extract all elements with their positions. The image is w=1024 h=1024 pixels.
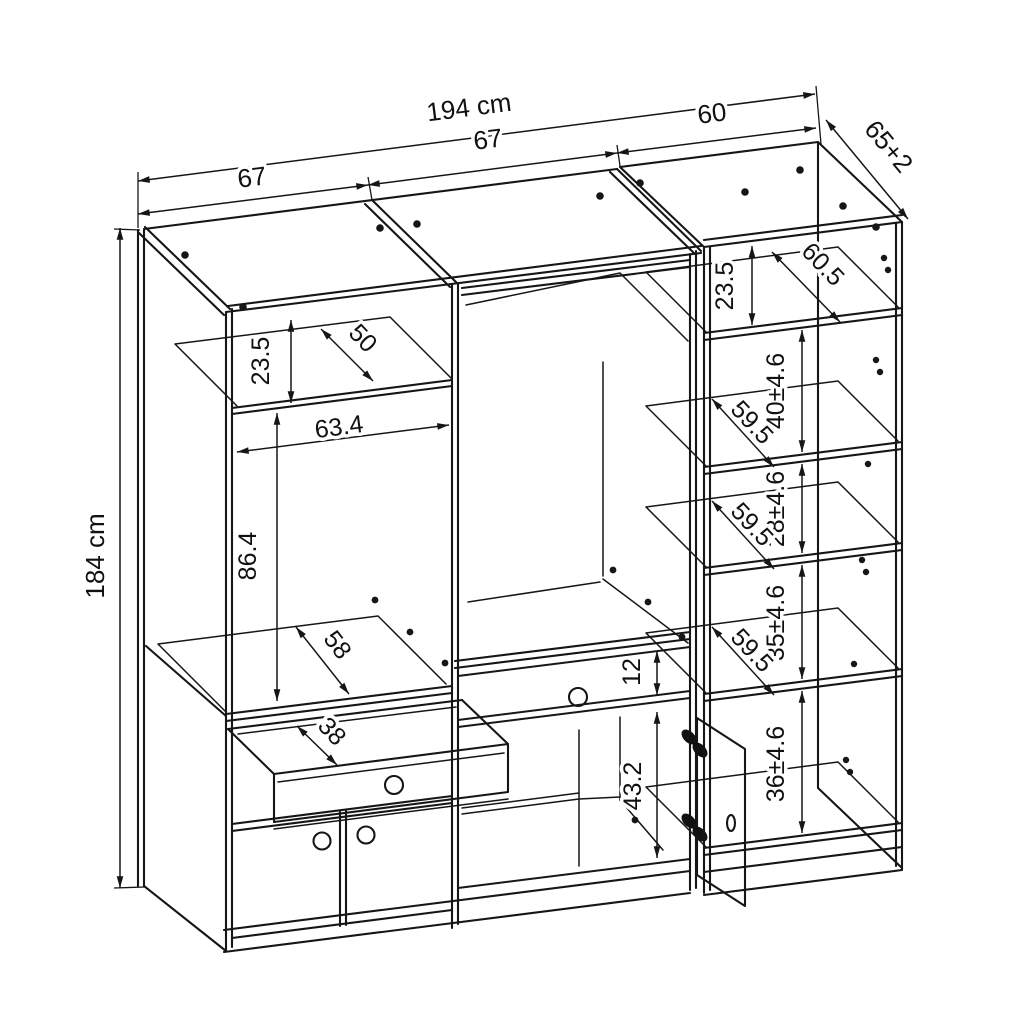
open-door <box>679 718 745 906</box>
dimension-total-height: 184 cm <box>80 228 120 888</box>
dimension-right-top-gap: 23.5 <box>711 246 752 325</box>
right-gap-4-label: 36±4.6 <box>762 726 790 802</box>
right-top-shelf-depth-label: 60.5 <box>796 237 850 291</box>
dimension-center-width: 67 <box>368 122 617 185</box>
left-doors <box>232 796 452 938</box>
left-interior-height-label: 86.4 <box>234 532 262 581</box>
center-door-height-label: 43.2 <box>619 762 647 811</box>
hinge-icon <box>679 727 711 761</box>
dimension-left-interior-width: 63.4 <box>237 410 449 452</box>
left-interior-width-label: 63.4 <box>313 410 365 444</box>
dimension-left-interior-height: 86.4 <box>234 413 277 701</box>
wardrobe-dimension-diagram: 194 cm 67 67 60 65+2 184 cm 23.5 <box>0 0 1024 1024</box>
furniture-assembly-drawing: 194 cm 67 67 60 65+2 184 cm 23.5 <box>0 0 1024 1024</box>
left-section-interior <box>158 251 452 721</box>
left-top-gap-label: 23.5 <box>247 337 275 386</box>
dimension-left-floor-depth: 58 <box>296 625 357 694</box>
left-width-label: 67 <box>236 160 268 193</box>
dimension-right-width: 60 <box>617 96 816 153</box>
left-floor-depth-label: 58 <box>318 625 357 664</box>
right-top-gap-label: 23.5 <box>711 262 739 311</box>
depth-label: 65+2 <box>859 114 920 178</box>
center-drawer <box>458 647 690 720</box>
right-width-label: 60 <box>696 96 728 129</box>
total-height-label: 184 cm <box>80 513 110 598</box>
left-top-shelf-depth-label: 50 <box>343 319 382 358</box>
dimension-right-gap-4: 36±4.6 <box>762 691 802 833</box>
dimension-center-drawer-height: 12 <box>618 651 657 695</box>
dimension-left-top-shelf-depth: 50 <box>321 319 382 381</box>
hinge-icon <box>679 811 711 845</box>
center-width-label: 67 <box>472 122 504 155</box>
wardrobe-carcass <box>138 169 701 952</box>
total-width-label: 194 cm <box>425 87 513 128</box>
center-drawer-height-label: 12 <box>618 658 646 686</box>
dimension-depth: 65+2 <box>826 114 919 219</box>
dimension-right-top-shelf-depth: 60.5 <box>772 237 850 322</box>
